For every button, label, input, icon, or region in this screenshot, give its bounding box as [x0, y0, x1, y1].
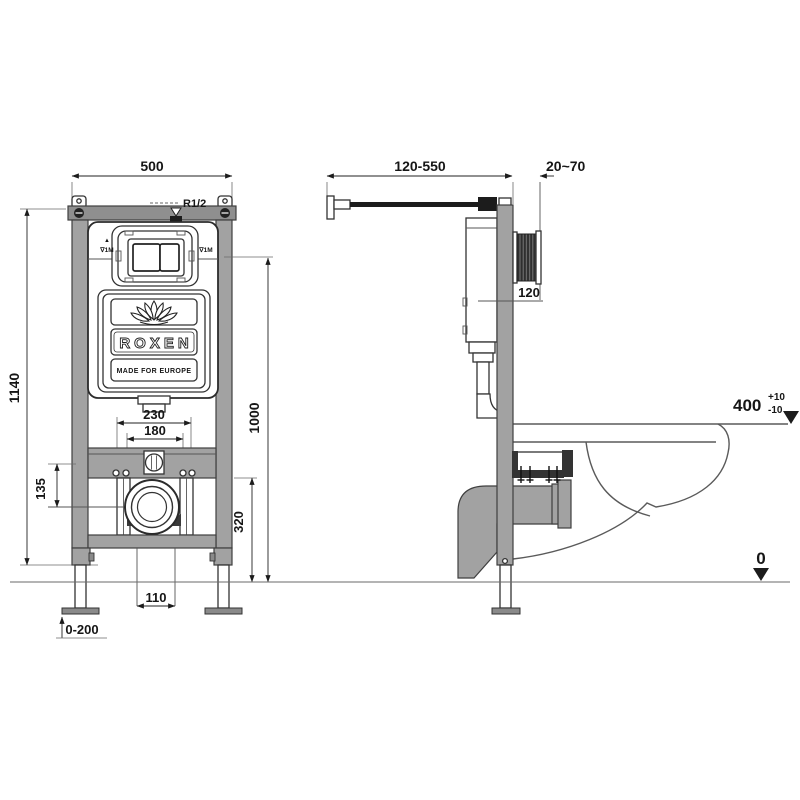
pipe-fitting [144, 451, 164, 474]
foot-plate-right [205, 608, 242, 614]
flush-plate [112, 226, 198, 286]
frame-bottom-rail [88, 535, 216, 548]
dim-finish-wall-label: 20~70 [546, 158, 586, 174]
frame-top-rail [68, 196, 236, 220]
dim-bowl-height: 400 +10 -10 [733, 392, 799, 424]
fixing-hole [123, 470, 129, 476]
foot-plate-left [62, 608, 99, 614]
front-view: 500 1140 [6, 158, 273, 638]
dim-width-label: 500 [140, 158, 164, 174]
dim-outer-fixing-label: 230 [143, 407, 165, 422]
dim-bowl-height-label: 400 [733, 396, 761, 415]
water-supply-pipe [327, 196, 497, 219]
cistern-side [463, 218, 502, 418]
dim-height-label: 1140 [6, 373, 22, 404]
dim-leg-adjustment: 0-200 [56, 617, 107, 638]
dim-leg-adjustment-label: 0-200 [65, 622, 98, 637]
water-mark-right-label: ∇1M [198, 246, 212, 254]
side-leg [500, 565, 511, 608]
dim-outlet-height-label: 320 [231, 511, 246, 533]
flush-button-small [160, 244, 179, 271]
water-mark-left-label: ∇1M [99, 246, 113, 254]
dim-inner-fixing-label: 180 [144, 423, 166, 438]
water-level-mark-right: ∇1M [198, 246, 212, 254]
cistern: ▲ ∇1M ∇1M [88, 222, 218, 412]
dim-width: 500 [72, 158, 232, 199]
drain-outlet [48, 480, 181, 534]
dim-floor-level: 0 [753, 549, 769, 581]
side-view: 120-550 20~70 [327, 158, 799, 614]
dim-bar-to-outlet: 135 [33, 464, 76, 507]
brand-tagline-text: MADE FOR EUROPE [117, 368, 192, 375]
dim-hatch-label: 120 [518, 285, 540, 300]
frame-post-left [72, 220, 88, 548]
dim-plate-height-label: 1000 [246, 402, 262, 433]
dim-inlet-depth-label: 120-550 [394, 158, 446, 174]
dim-bowl-tol-minus: -10 [768, 405, 783, 416]
brand-panel: ROXEN MADE FOR EUROPE [98, 290, 210, 392]
screw-icon [74, 208, 84, 218]
frame-post-side [497, 205, 513, 565]
fixing-hole [113, 470, 119, 476]
level-marker-icon [783, 411, 799, 424]
drawing-canvas: 500 1140 [0, 0, 800, 800]
screw-icon [220, 208, 230, 218]
level-marker-icon [753, 568, 769, 581]
dim-floor-level-label: 0 [756, 549, 765, 568]
leg-pin-hole [503, 559, 508, 564]
flush-neck [138, 396, 170, 404]
floor-drain: 110 [137, 548, 175, 606]
dim-outlet-height: 320 [231, 478, 257, 582]
dim-bowl-tol-plus: +10 [768, 392, 785, 403]
technical-drawing: 500 1140 [0, 0, 800, 800]
water-mark-arrow: ▲ [104, 238, 110, 244]
drain-elbow [458, 480, 571, 578]
dim-floor-outlet-label: 110 [146, 590, 167, 605]
inlet-thread-label: R1/2 [183, 198, 206, 210]
fixing-hole [189, 470, 195, 476]
mounting-crossbar [88, 448, 216, 478]
flush-button-large [133, 244, 160, 271]
bowl-fixing-bracket [512, 450, 573, 483]
fixing-hole [180, 470, 186, 476]
brand-logo-text: ROXEN [119, 335, 192, 352]
dim-bar-to-outlet-label: 135 [33, 478, 48, 500]
flush-access-hatch [513, 231, 541, 284]
side-foot-plate [492, 608, 520, 614]
